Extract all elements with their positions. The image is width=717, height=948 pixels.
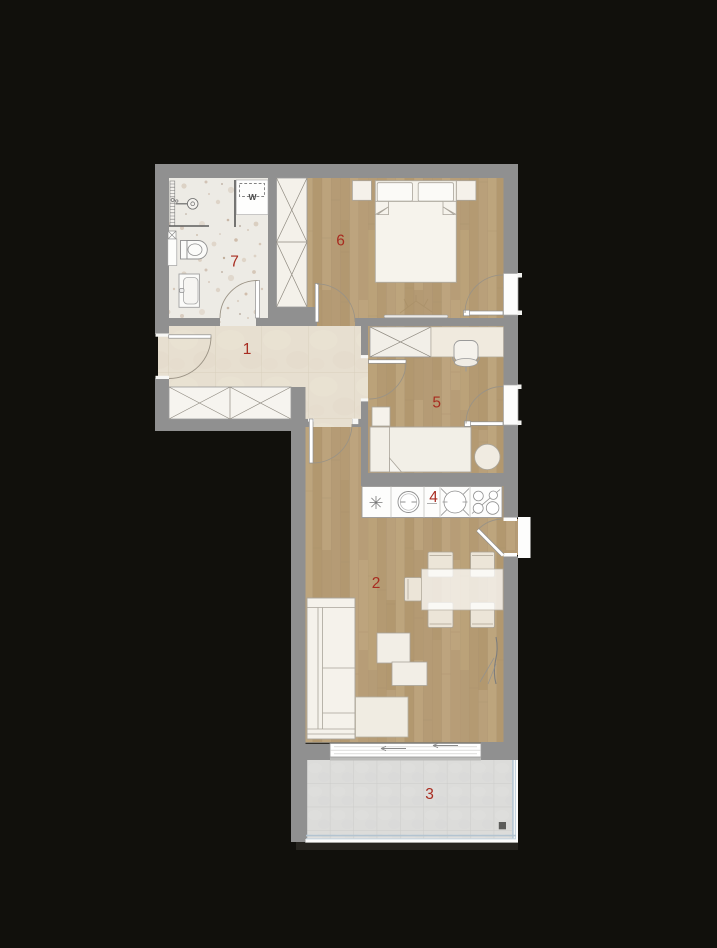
svg-text:1: 1 — [243, 341, 252, 358]
svg-text:5: 5 — [432, 395, 441, 412]
svg-text:4: 4 — [429, 489, 438, 506]
svg-text:W: W — [248, 192, 257, 202]
svg-text:7: 7 — [230, 254, 239, 271]
svg-text:2: 2 — [372, 575, 381, 592]
svg-text:3: 3 — [425, 786, 434, 803]
svg-text:6: 6 — [336, 233, 345, 250]
